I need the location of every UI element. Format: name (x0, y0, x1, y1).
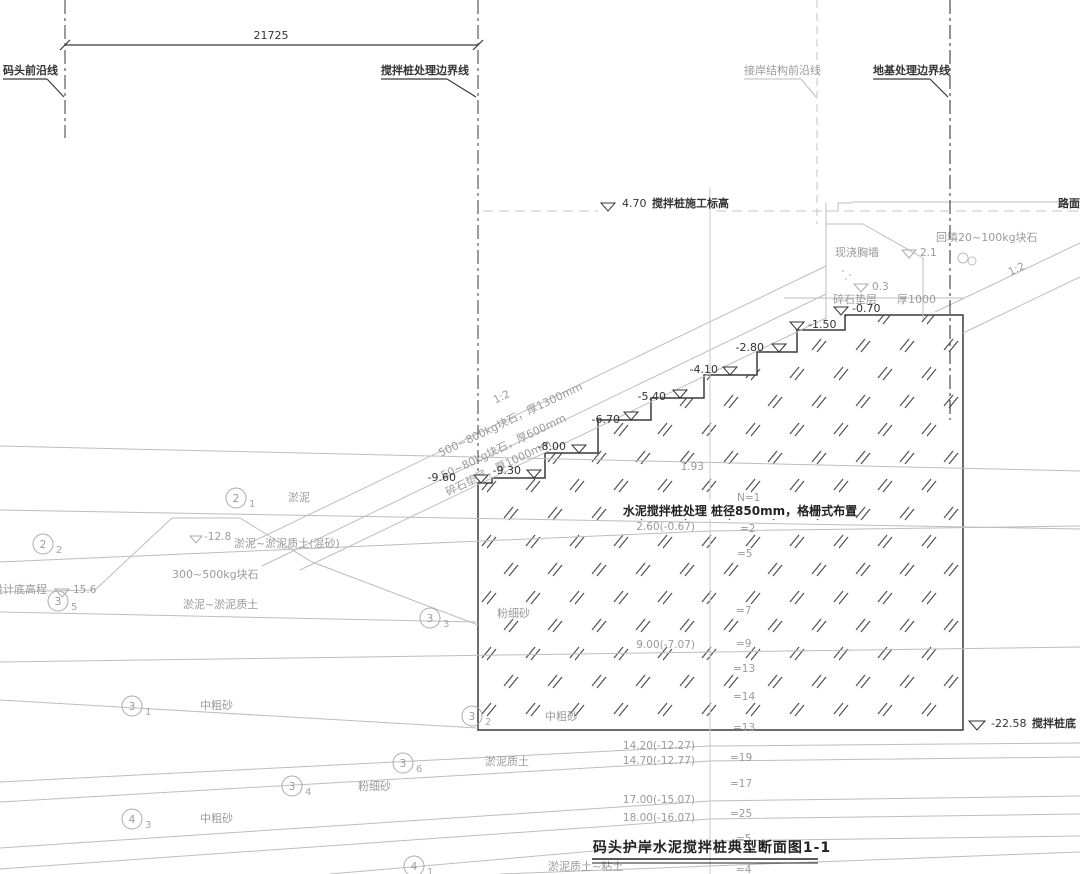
wall-crest-level: 2.1 (920, 247, 937, 259)
pile-count: =13 (733, 663, 755, 675)
layer-sub: 3 (443, 619, 449, 630)
bedding-label-right: 厚1000 (897, 293, 936, 306)
pile-count: =4 (736, 864, 752, 874)
layer-num: 3 (400, 758, 407, 770)
layer-sub: 1 (145, 707, 151, 718)
wall-toe-level: 0.3 (872, 281, 889, 293)
pile-count: =7 (736, 605, 751, 617)
layer-num: 3 (289, 781, 296, 793)
layer-sub: 6 (416, 764, 422, 775)
prism-label: 300~500kg块石 (172, 568, 259, 581)
pile-count: =19 (730, 752, 752, 764)
layer-num: 3 (129, 701, 136, 713)
layer-num: 3 (427, 613, 434, 625)
step-level: -2.80 (736, 341, 764, 354)
step-level: -5.40 (638, 390, 666, 403)
pile-count: =14 (733, 691, 755, 703)
soil-sand-mc: 中粗砂 (545, 710, 578, 723)
pile-bottom-label: 搅拌桩底 (1032, 716, 1076, 730)
soil-silty: 淤泥质土 (485, 755, 529, 768)
drawing-title: 码头护岸水泥搅拌桩典型断面图1-1 (592, 839, 831, 863)
step-level: -6.70 (592, 413, 620, 426)
layer-num: 2 (40, 539, 47, 551)
wharf-revetment-section: 21725 码头前沿线 搅拌桩处理边界线 接岸结构前沿线 地基处理边界线 4.7… (0, 0, 1080, 874)
design-bottom-value: 15.6 (73, 584, 97, 596)
layer-sub: 5 (71, 602, 77, 613)
pile-count: =13 (733, 722, 755, 734)
pile-count: =25 (730, 808, 752, 820)
step-level: -1.50 (808, 318, 836, 331)
breast-wall-label: 现浇胸墙 (835, 245, 879, 259)
depth-mark: 17.00(-15.07) (623, 794, 695, 806)
shore-structure-label: 接岸结构前沿线 (744, 63, 821, 77)
road-label: 路面 (1058, 196, 1080, 210)
soil-silt: 淤泥 (288, 491, 310, 504)
backfill-label: 回填20~100kg块石 (936, 230, 1038, 244)
step-level: -0.70 (852, 302, 880, 315)
layer-sub: 4 (305, 787, 311, 798)
step-level: -9.30 (493, 464, 521, 477)
soil-sand-mc: 中粗砂 (200, 699, 233, 712)
layer-num: 3 (55, 596, 62, 608)
layer-sub: 2 (56, 545, 62, 556)
depth-mark: 2.60(-0.67) (636, 521, 695, 533)
pile-count: =5 (737, 548, 752, 560)
soil-sand-fine: 粉细砂 (358, 780, 391, 793)
soil-sand-mc: 中粗砂 (200, 812, 233, 825)
soil-silty-clay: 淤泥质土~粘土 (548, 859, 623, 873)
pile-count: N=1 (737, 492, 760, 504)
pile-count: =2 (740, 523, 755, 535)
step-level: -8.00 (538, 440, 566, 453)
layer-sub: 3 (145, 820, 151, 831)
layer-sub: 2 (485, 717, 491, 728)
layer-num: 4 (411, 861, 418, 873)
layer-num: 3 (469, 711, 476, 723)
foundation-boundary-label: 地基处理边界线 (873, 63, 950, 77)
dimension-value: 21725 (254, 29, 289, 42)
step-level: -4.10 (690, 363, 718, 376)
pile-count: =17 (730, 778, 752, 790)
cad-section-drawing: 21725 码头前沿线 搅拌桩处理边界线 接岸结构前沿线 地基处理边界线 4.7… (0, 0, 1080, 874)
step-level: -9.60 (428, 471, 456, 484)
pile-count: =9 (736, 638, 751, 650)
layer-num: 4 (129, 814, 136, 826)
mud-level-value: -12.8 (204, 531, 231, 543)
layer-sub: 1 (249, 499, 255, 510)
depth-mark: 14.70(-12.77) (623, 755, 695, 767)
depth-mark: 14.20(-12.27) (623, 740, 695, 752)
title-text: 码头护岸水泥搅拌桩典型断面图1-1 (593, 839, 831, 856)
construction-level-value: 4.70 (622, 197, 647, 210)
layer-sub: 1 (427, 867, 433, 874)
mud-level-label: 淤泥~淤泥质土(混砂) (234, 537, 340, 550)
depth-mark: 9.00(-7.07) (636, 639, 695, 651)
pile-bottom-value: -22.58 (991, 717, 1026, 730)
soil-sand-fine: 粉细砂 (497, 607, 530, 620)
depth-mark: 18.00(-16.07) (623, 812, 695, 824)
construction-level-label: 搅拌桩施工标高 (652, 196, 729, 210)
layer-num: 2 (233, 493, 240, 505)
wharf-front-label: 码头前沿线 (3, 63, 58, 77)
datum-offset: 1.93 (681, 461, 704, 473)
pile-spec-text: 水泥搅拌桩处理 桩径850mm，格栅式布置 (623, 503, 857, 518)
design-bottom-label: 设计底高程 (0, 582, 47, 596)
mixing-pile-boundary-label: 搅拌桩处理边界线 (381, 63, 469, 77)
soil-silt-silty: 淤泥~淤泥质土 (183, 598, 258, 611)
